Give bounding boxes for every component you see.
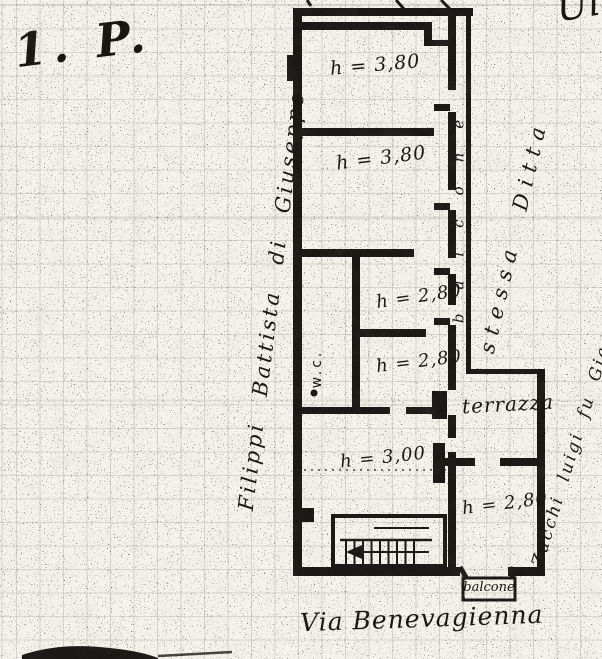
balcony-flare-left [460,567,467,579]
cut-swash-tail [158,652,232,656]
balcony-corridor-label: balcone [452,75,467,345]
door-jamb [434,203,450,210]
wall-inner-top-notch-h [424,40,448,46]
terrace-top-wall [466,369,544,374]
top-right-handwriting-fragment: Ul [553,0,602,28]
door-jamb-terrace [432,391,447,419]
cut-stroke-top [396,0,404,9]
balcony-box-label: balcone [463,581,515,594]
stair-jamb [302,508,314,522]
door-jamb [434,318,450,325]
scanned-floor-plan-page: 1. P. Ul Filippi Battista di Giuseppe st… [0,0,602,659]
cut-stroke-top [307,0,311,6]
cut-stroke-top [441,0,450,9]
terrace-room-divider-t [433,443,445,483]
terrace-label: terrazza [462,392,555,417]
door-jamb [434,268,450,275]
staircase [333,516,445,566]
wall-top [293,8,473,16]
wall-right-seg [448,415,456,438]
wall-bottom-left [293,567,460,576]
cut-swash-bottom-left [22,646,158,659]
wall-inner-top [302,22,430,30]
wall-right-seg [448,452,456,567]
terrace-room-divider-a [445,458,475,466]
wall-room1-room2 [302,128,434,136]
door-jamb [434,104,450,111]
terrace-room-divider-b [500,458,537,466]
wall-mid-room-lower-a [302,407,390,414]
wc-label: w.c. [310,339,324,399]
wall-mid-divider [358,329,426,337]
balcony-flare-right [510,567,513,579]
wall-mid-room-lower-b [406,407,432,414]
